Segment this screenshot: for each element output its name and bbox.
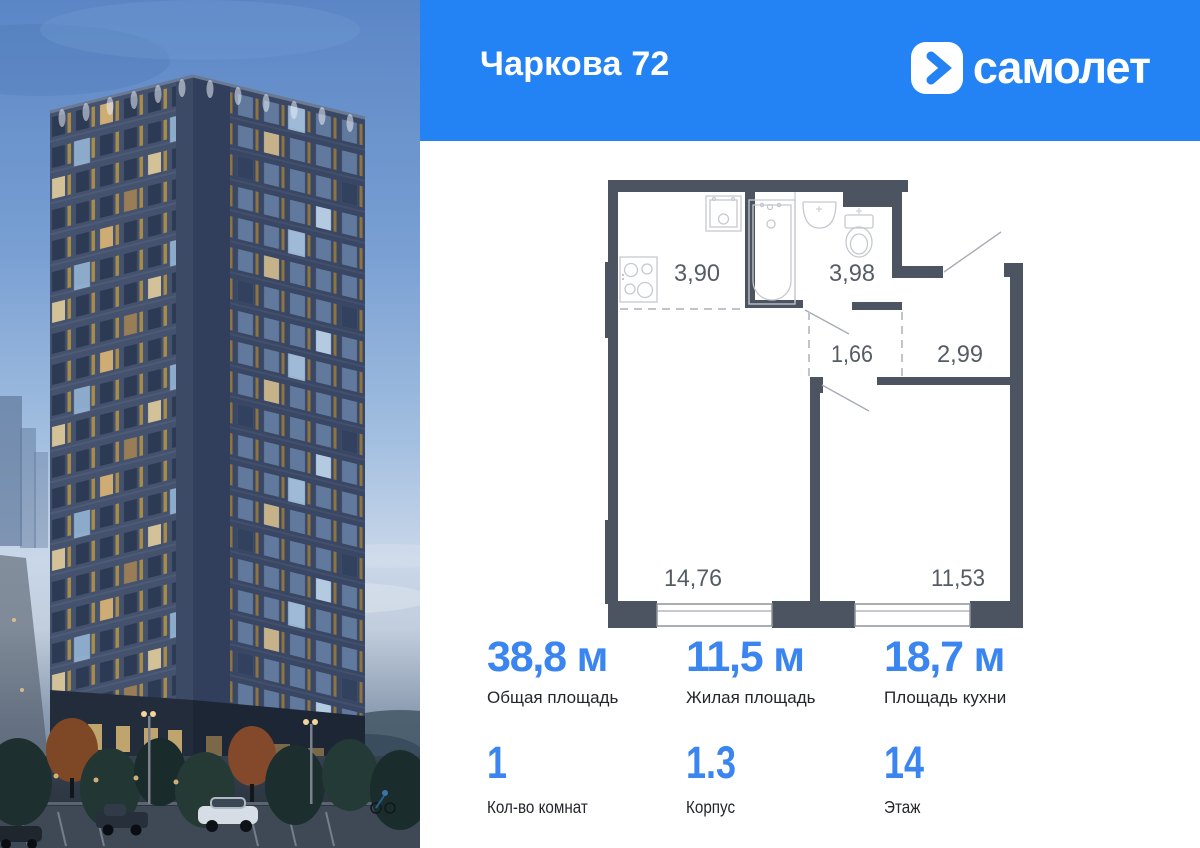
stat-floor-value: 14 bbox=[884, 737, 924, 789]
kitchen-sink-icon bbox=[706, 196, 741, 231]
header-band: Чаркова 72 самолет bbox=[420, 0, 1200, 141]
stat-floor: 14 Этаж bbox=[884, 737, 934, 818]
stat-total-area-label: Общая площадь bbox=[487, 688, 618, 708]
stat-total-area: 38,8 м Общая площадь bbox=[487, 633, 618, 708]
room-area-kitchen-living-room: 11,53 bbox=[931, 565, 985, 592]
stat-living-area-value: 11,5 м bbox=[686, 633, 815, 682]
room-area-living-room: 14,76 bbox=[664, 565, 722, 592]
listing-card: Чаркова 72 самолет bbox=[0, 0, 1200, 848]
stat-total-area-value: 38,8 м bbox=[487, 633, 618, 682]
washbasin-icon bbox=[803, 202, 836, 228]
stat-rooms-value: 1 bbox=[487, 737, 580, 789]
tower bbox=[50, 76, 365, 790]
plan-walls bbox=[605, 180, 1023, 628]
samolet-chevron-icon bbox=[911, 42, 963, 94]
project-title: Чаркова 72 bbox=[480, 44, 670, 84]
stat-floor-label: Этаж bbox=[884, 797, 928, 818]
bathtub-icon bbox=[749, 192, 795, 304]
room-area-kitchen-zone: 3,90 bbox=[674, 260, 720, 287]
stat-rooms-label: Кол-во комнат bbox=[487, 797, 588, 818]
stove-icon bbox=[620, 257, 657, 302]
info-panel: Чаркова 72 самолет bbox=[420, 0, 1200, 848]
stat-building: 1.3 Корпус bbox=[686, 737, 749, 818]
brand-name: самолет bbox=[973, 42, 1150, 94]
stat-building-label: Корпус bbox=[686, 797, 740, 818]
room-area-bathroom: 3,98 bbox=[829, 260, 875, 287]
stat-kitchen-area: 18,7 м Площадь кухни bbox=[884, 633, 1006, 708]
room-labels: 3,90 3,98 1,66 2,99 14,76 11,53 bbox=[664, 260, 985, 592]
room-area-hallway: 1,66 bbox=[831, 341, 873, 368]
stat-living-area-label: Жилая площадь bbox=[686, 688, 815, 708]
samolet-logo: самолет bbox=[911, 42, 1150, 94]
room-area-entry-hall: 2,99 bbox=[937, 341, 983, 368]
stat-kitchen-area-value: 18,7 м bbox=[884, 633, 1006, 682]
building-photo bbox=[0, 0, 420, 848]
stat-living-area: 11,5 м Жилая площадь bbox=[686, 633, 815, 708]
stat-rooms: 1 Кол-во комнат bbox=[487, 737, 603, 818]
stat-building-value: 1.3 bbox=[686, 737, 736, 789]
floor-plan: 3,90 3,98 1,66 2,99 14,76 11,53 bbox=[605, 175, 1030, 630]
stat-kitchen-area-label: Площадь кухни bbox=[884, 688, 1006, 708]
toilet-icon bbox=[845, 208, 873, 257]
